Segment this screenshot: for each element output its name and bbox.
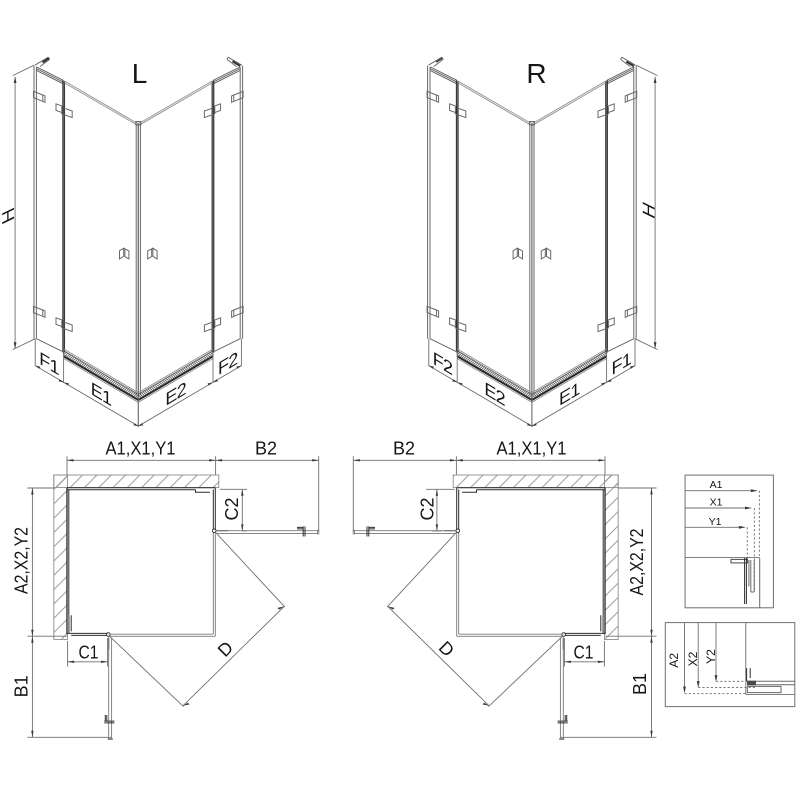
svg-text:B1: B1 bbox=[630, 673, 650, 695]
svg-text:B2: B2 bbox=[255, 439, 277, 459]
svg-text:F1: F1 bbox=[39, 348, 58, 380]
svg-text:Y2: Y2 bbox=[704, 649, 718, 664]
svg-text:B1: B1 bbox=[12, 675, 32, 697]
svg-text:C2: C2 bbox=[222, 497, 242, 520]
svg-text:A1: A1 bbox=[710, 479, 723, 491]
svg-text:A2,X2,Y2: A2,X2,Y2 bbox=[12, 527, 32, 594]
svg-text:R: R bbox=[526, 58, 546, 89]
svg-text:L: L bbox=[132, 58, 148, 89]
svg-text:C1: C1 bbox=[79, 643, 99, 663]
svg-text:H: H bbox=[640, 199, 659, 222]
svg-text:A1,X1,Y1: A1,X1,Y1 bbox=[106, 439, 176, 459]
svg-text:D: D bbox=[214, 637, 237, 660]
svg-text:Y1: Y1 bbox=[709, 516, 722, 528]
svg-text:H: H bbox=[0, 204, 18, 227]
svg-text:F1: F1 bbox=[611, 348, 630, 380]
svg-text:C2: C2 bbox=[418, 497, 438, 520]
svg-text:F2: F2 bbox=[433, 348, 452, 380]
svg-text:A2: A2 bbox=[667, 653, 681, 668]
svg-text:X1: X1 bbox=[710, 496, 723, 508]
svg-text:A1,X1,Y1: A1,X1,Y1 bbox=[497, 439, 567, 459]
svg-text:X2: X2 bbox=[686, 651, 700, 666]
svg-text:F2: F2 bbox=[218, 348, 237, 380]
svg-text:A2,X2,Y2: A2,X2,Y2 bbox=[627, 529, 647, 596]
svg-text:D: D bbox=[435, 637, 458, 660]
svg-text:B2: B2 bbox=[393, 439, 415, 459]
svg-text:C1: C1 bbox=[574, 643, 594, 663]
